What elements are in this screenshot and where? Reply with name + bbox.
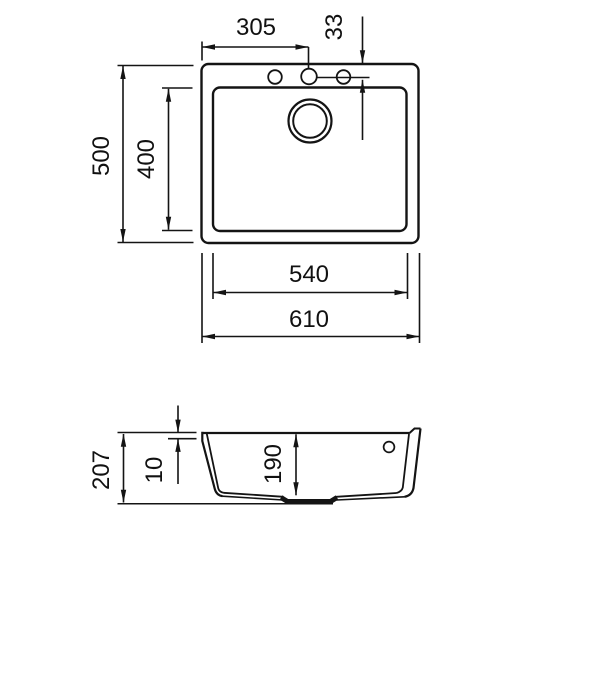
drain-outer-ring <box>289 100 332 143</box>
dim-label-500: 500 <box>88 136 115 176</box>
overflow-hole <box>384 442 395 453</box>
top-view <box>202 64 419 243</box>
wall-left-inner <box>207 434 224 493</box>
dim-faucet-setback: 33 <box>317 14 370 140</box>
rim-lip-right <box>409 429 421 434</box>
dim-label-10: 10 <box>141 457 168 484</box>
dim-faucet-offset: 305 <box>202 14 309 69</box>
sink-dimension-drawing: 305 33 500 400 540 <box>0 0 600 689</box>
dim-label-305: 305 <box>236 14 276 41</box>
section-view <box>202 429 420 502</box>
bottom-inner-right <box>336 493 397 497</box>
bowl-edge <box>213 88 407 232</box>
sink-outer-edge <box>202 64 419 243</box>
dim-label-207: 207 <box>88 450 115 490</box>
dim-label-33: 33 <box>321 14 348 41</box>
dim-bowl-height: 190 <box>260 434 299 495</box>
dim-label-610: 610 <box>289 306 329 333</box>
dim-bowl-depth: 400 <box>133 88 193 231</box>
bottom-outer-right <box>337 497 405 500</box>
technical-drawing-canvas: 305 33 500 400 540 <box>0 0 600 689</box>
drain-recess <box>281 498 337 502</box>
wall-right-outer <box>405 429 421 497</box>
wall-right-inner <box>397 434 410 493</box>
dim-label-190: 190 <box>260 444 287 484</box>
dim-label-540: 540 <box>289 261 329 288</box>
faucet-hole-middle <box>301 69 317 85</box>
faucet-hole-left <box>268 70 282 84</box>
drain-inner-ring <box>293 104 327 138</box>
dim-rim-height: 10 <box>141 406 197 485</box>
dim-bowl-width: 540 <box>213 253 408 299</box>
dim-label-400: 400 <box>133 139 160 179</box>
